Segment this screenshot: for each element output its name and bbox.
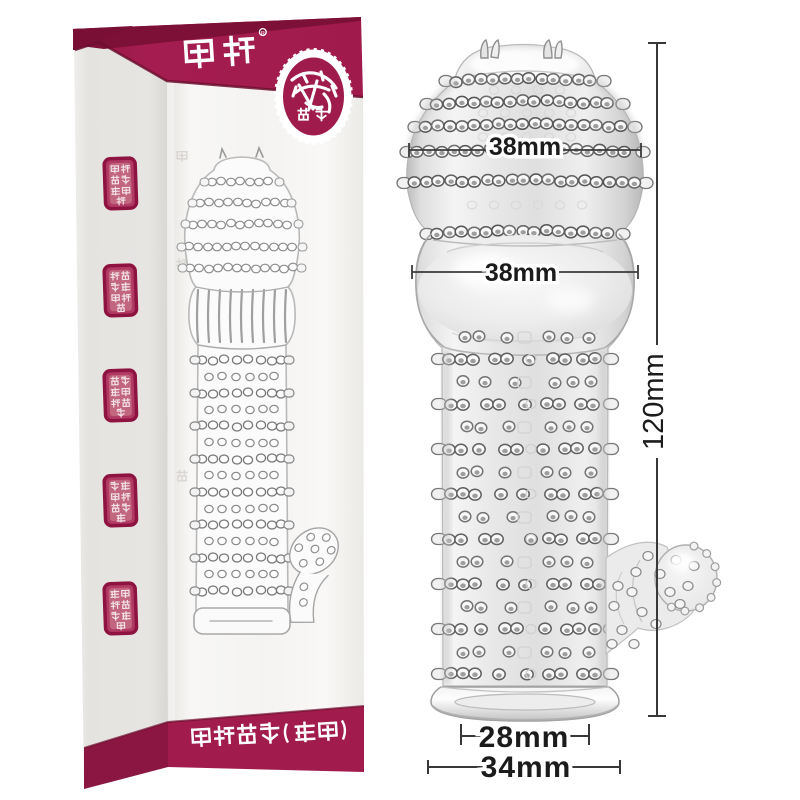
svg-text:120mm: 120mm — [638, 353, 670, 450]
svg-text:38mm: 38mm — [485, 259, 557, 287]
svg-text:28mm: 28mm — [479, 721, 570, 754]
svg-text:38mm: 38mm — [489, 133, 561, 161]
svg-text:R: R — [261, 31, 265, 37]
svg-text:34mm: 34mm — [481, 751, 572, 784]
